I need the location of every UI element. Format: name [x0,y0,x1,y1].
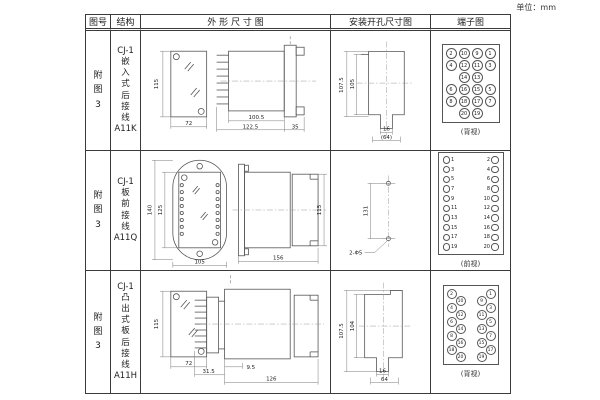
header-outline: 外 形 尺 寸 图 [141,15,331,31]
terminal-pin [491,234,499,242]
dim-step: 9.5 [246,365,255,371]
terminal-pin: 9 [477,296,487,306]
terminal-number: 10 [484,196,490,202]
row2-outline-cell: 140 125 105 156 115 [141,151,331,271]
terminal-pin [443,185,451,193]
outline-drawing-a11k: 115 72 100.5 122.5 35 [141,35,330,147]
terminal-pin: 7 [485,96,496,107]
terminal-pin: 3 [486,303,496,313]
terminal-pin: 10 [456,296,466,306]
terminal-number: 4 [487,167,490,173]
terminal-number: 11 [451,205,457,211]
terminal-number: 19 [451,244,457,250]
terminal-number: 7 [451,186,454,192]
terminal-pin [491,195,499,203]
terminal-view-label: (背视) [461,369,480,379]
dim-slot: 16 [383,126,390,132]
terminal-block-rear: 21091 412113 1413 616155 818177 2019 [442,44,500,123]
terminal-block-rear-plug: 2 10 4 12 6 14 8 16 18 20 1 9 3 11 5 13 … [443,285,499,365]
dim-hole-pitch: 131 [364,205,370,215]
mounting-drawing-a11k: 107.5 105 16 (64) [331,35,430,147]
dim-width64: 64 [381,377,388,383]
dim-outer-height: 140 [147,204,153,215]
terminal-pin: 14 [459,72,470,83]
terminal-pin: 18 [447,345,457,355]
terminal-pin: 5 [486,317,496,327]
dim-body-length: 100.5 [249,114,265,120]
terminal-pin [443,214,451,222]
terminal-pin: 5 [485,84,496,95]
row1-structure-label: CJ-1 嵌 入 式 后 接 线 A11K [111,31,141,151]
outline-drawing-a11q: 140 125 105 156 115 [141,152,330,270]
terminal-pin [443,234,451,242]
hole-spec-label: 2-Φ5 [349,250,362,256]
terminal-number: 20 [484,244,490,250]
row2-fig-label: 附 图 3 [86,151,111,271]
dim-length: 156 [273,255,284,261]
dim-side-height: 115 [317,204,323,214]
terminal-pin: 6 [447,317,457,327]
row1-fig-label: 附 图 3 [86,31,111,151]
terminal-pin [443,195,451,203]
terminal-pin: 20 [459,108,470,119]
terminal-view-label: (前视) [461,259,480,269]
terminal-pin [491,205,499,213]
terminal-pin [491,166,499,174]
terminal-block-front: 12 34 56 78 910 1112 1314 1516 1718 1920 [438,152,504,255]
row2-terminal-cell: 12 34 56 78 910 1112 1314 1516 1718 1920… [431,151,510,271]
terminal-pin: 3 [485,60,496,71]
terminal-number: 15 [451,225,457,231]
outline-drawing-a11h: 115 72 31.5 9. [141,273,330,391]
terminal-pin: 19 [477,352,487,362]
dim-height: 115 [154,78,160,88]
terminal-pin: 11 [472,60,483,71]
terminal-pin: 14 [456,324,466,334]
spec-table: 图号 结构 外 形 尺 寸 图 安装开孔尺寸图 端子图 附 图 3 CJ-1 嵌… [85,14,511,394]
terminal-number: 2 [487,157,490,163]
terminal-number: 3 [451,167,454,173]
dim-slot: 16 [379,369,386,375]
terminal-number: 8 [487,186,490,192]
terminal-number: 13 [451,215,457,221]
row2-mounting-cell: 131 2-Φ5 [331,151,431,271]
dim-total-length: 122.5 [243,124,259,130]
terminal-pin: 20 [456,352,466,362]
terminal-pin: 7 [486,331,496,341]
terminal-pin: 17 [486,345,496,355]
dim-width64: (64) [381,135,392,141]
terminal-number: 9 [451,196,454,202]
terminal-pin: 2 [446,48,457,59]
terminal-pin: 4 [446,60,457,71]
terminal-pin: 15 [477,338,487,348]
terminal-pin: 13 [472,72,483,83]
terminal-pin: 8 [447,331,457,341]
dim-pins: 31.5 [203,369,215,375]
row3-mounting-cell: 107.5 104 16 64 [331,271,431,393]
row3-fig-label: 附 图 3 [86,271,111,393]
terminal-pin [491,243,499,251]
terminal-pin: 13 [477,324,487,334]
terminal-pin: 16 [459,84,470,95]
terminal-number: 16 [484,225,490,231]
row3-outline-cell: 115 72 31.5 9. [141,271,331,393]
dim-width: 72 [185,361,192,367]
terminal-number: 14 [484,215,490,221]
header-mounting: 安装开孔尺寸图 [331,15,431,31]
mounting-drawing-a11q: 131 2-Φ5 [331,155,430,267]
dim-width: 72 [185,120,192,126]
terminal-number: 1 [451,157,454,163]
terminal-pin [443,156,451,164]
dim-outer-height: 107.5 [339,323,345,339]
terminal-pin: 17 [472,96,483,107]
terminal-pin: 10 [459,48,470,59]
terminal-view-label: (背视) [461,127,480,137]
terminal-pin [491,176,499,184]
header-terminal: 端子图 [431,15,510,31]
dim-flange: 35 [292,124,299,130]
terminal-pin: 18 [459,96,470,107]
unit-label: 单位：mm [516,2,556,13]
terminal-number: 5 [451,176,454,182]
terminal-pin [491,156,499,164]
terminal-pin: 16 [456,338,466,348]
terminal-pin [491,224,499,232]
terminal-pin: 11 [477,310,487,320]
row3-terminal-cell: 2 10 4 12 6 14 8 16 18 20 1 9 3 11 5 13 … [431,271,510,393]
dim-length: 126 [266,377,277,383]
terminal-pin [443,243,451,251]
terminal-number: 12 [484,205,490,211]
dim-inner-height: 125 [158,204,164,214]
header-structure: 结构 [111,15,141,31]
terminal-pin [491,185,499,193]
dim-inner-height: 105 [350,78,356,88]
row1-outline-cell: 115 72 100.5 122.5 35 [141,31,331,151]
row3-structure-label: CJ-1 凸 出 式 板 后 接 线 A11H [111,271,141,393]
terminal-pin: 4 [447,303,457,313]
terminal-pin: 2 [447,289,457,299]
terminal-pin: 15 [472,84,483,95]
terminal-number: 18 [484,234,490,240]
terminal-pin [491,214,499,222]
mounting-drawing-a11h: 107.5 104 16 64 [331,276,430,388]
dim-outer-height: 107.5 [339,77,345,93]
terminal-pin: 19 [472,108,483,119]
terminal-pin [443,166,451,174]
terminal-pin: 8 [446,96,457,107]
row1-terminal-cell: 21091 412113 1413 616155 818177 2019 (背视… [431,31,510,151]
row2-structure-label: CJ-1 板 前 接 线 A11Q [111,151,141,271]
terminal-number: 6 [487,176,490,182]
dim-width: 105 [194,259,204,265]
terminal-pin [443,224,451,232]
header-fig: 图号 [86,15,111,31]
terminal-pin: 9 [472,48,483,59]
terminal-pin: 12 [456,310,466,320]
terminal-pin: 6 [446,84,457,95]
terminal-pin: 1 [486,289,496,299]
terminal-pin [443,205,451,213]
row1-mounting-cell: 107.5 105 16 (64) [331,31,431,151]
dim-inner-height: 104 [350,320,356,331]
terminal-pin [443,176,451,184]
terminal-number: 17 [451,234,457,240]
terminal-pin: 12 [459,60,470,71]
dim-height: 115 [154,319,160,329]
terminal-pin: 1 [485,48,496,59]
